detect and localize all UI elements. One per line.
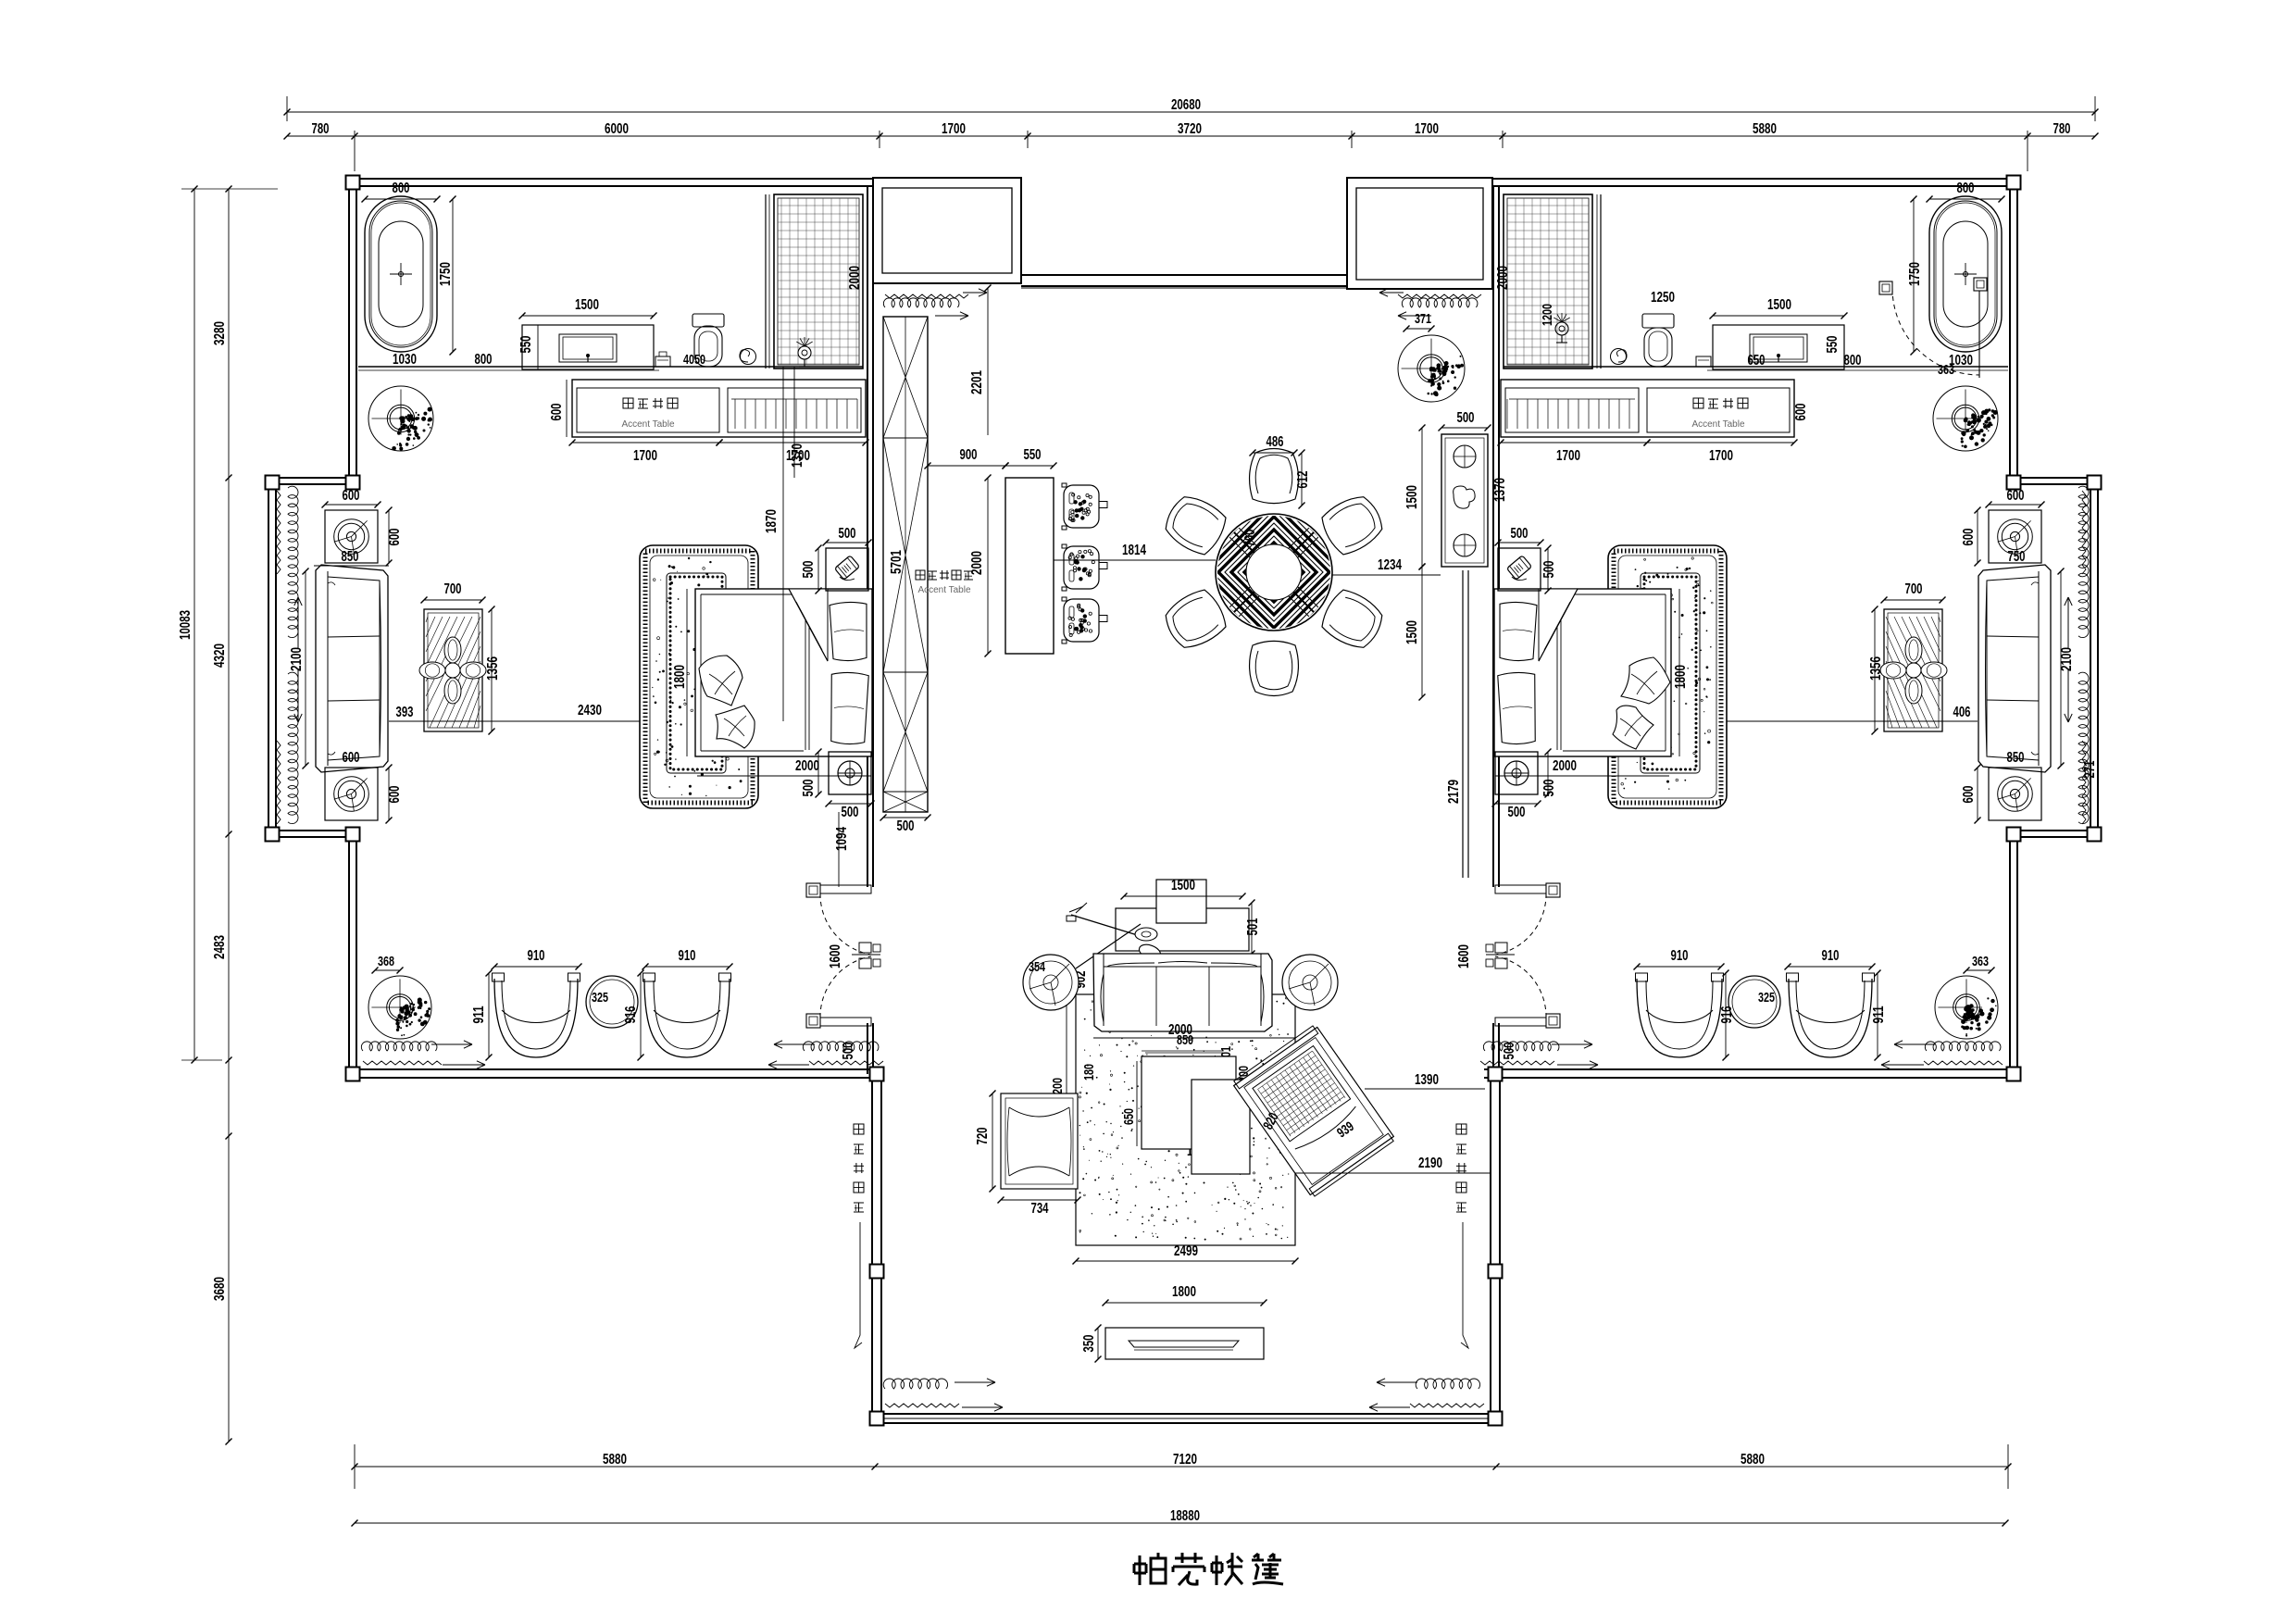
svg-text:911: 911 [1871, 1006, 1887, 1023]
svg-text:2000: 2000 [1553, 758, 1577, 774]
svg-text:734: 734 [1031, 1201, 1049, 1217]
svg-text:600: 600 [2007, 488, 2025, 504]
svg-text:600: 600 [1961, 528, 1977, 545]
svg-text:700: 700 [1242, 529, 1258, 546]
svg-text:850: 850 [1177, 1032, 1193, 1048]
svg-text:612: 612 [1295, 470, 1311, 488]
svg-text:500: 500 [842, 805, 859, 820]
svg-text:1234: 1234 [1378, 557, 1402, 573]
svg-text:2100: 2100 [289, 647, 305, 671]
svg-text:1500: 1500 [1404, 485, 1420, 509]
svg-text:3280: 3280 [212, 321, 228, 345]
svg-text:700: 700 [444, 581, 462, 597]
svg-text:1700: 1700 [1556, 448, 1580, 464]
svg-text:406: 406 [1953, 705, 1971, 720]
svg-text:720: 720 [975, 1127, 991, 1144]
svg-text:500: 500 [1511, 526, 1529, 542]
svg-text:500: 500 [1541, 560, 1557, 578]
svg-text:3720: 3720 [1178, 121, 1202, 137]
svg-text:4320: 4320 [212, 643, 228, 668]
svg-text:371: 371 [1415, 311, 1431, 327]
svg-text:910: 910 [1671, 948, 1689, 964]
svg-text:1700: 1700 [942, 121, 966, 137]
svg-text:850: 850 [2007, 750, 2025, 766]
svg-text:2100: 2100 [2059, 647, 2075, 671]
svg-text:916: 916 [623, 1006, 639, 1023]
svg-text:650: 650 [1121, 1108, 1137, 1125]
svg-text:2483: 2483 [212, 935, 228, 959]
svg-text:1250: 1250 [1651, 290, 1675, 306]
svg-text:2190: 2190 [1418, 1156, 1442, 1171]
svg-text:1094: 1094 [834, 827, 850, 851]
svg-text:Accent Table: Accent Table [621, 419, 675, 430]
svg-text:368: 368 [378, 954, 394, 969]
svg-text:363: 363 [1972, 954, 1989, 969]
svg-text:1814: 1814 [1122, 543, 1146, 558]
svg-text:910: 910 [528, 948, 545, 964]
svg-text:500: 500 [801, 779, 817, 796]
svg-text:2000: 2000 [795, 758, 819, 774]
svg-text:1800: 1800 [672, 665, 688, 689]
svg-text:18880: 18880 [1170, 1508, 1200, 1524]
svg-text:500: 500 [1457, 410, 1475, 426]
svg-text:800: 800 [393, 181, 410, 196]
svg-text:700: 700 [1905, 581, 1923, 597]
svg-text:325: 325 [1758, 990, 1775, 1006]
svg-text:600: 600 [387, 528, 403, 545]
svg-text:20680: 20680 [1171, 97, 1201, 113]
svg-text:900: 900 [960, 447, 978, 463]
svg-text:501: 501 [1245, 918, 1261, 935]
svg-text:500: 500 [897, 818, 915, 834]
svg-text:600: 600 [1793, 403, 1809, 420]
svg-text:800: 800 [475, 352, 493, 368]
svg-text:271: 271 [2082, 760, 2098, 778]
svg-text:500: 500 [839, 526, 856, 542]
svg-text:500: 500 [801, 560, 817, 578]
svg-text:7120: 7120 [1173, 1452, 1197, 1468]
svg-text:3680: 3680 [212, 1277, 228, 1301]
svg-text:780: 780 [312, 121, 330, 137]
svg-text:363: 363 [1938, 362, 1954, 378]
svg-text:1370: 1370 [1492, 478, 1508, 502]
svg-text:1870: 1870 [764, 509, 780, 533]
svg-text:5701: 5701 [889, 550, 905, 574]
svg-text:2000: 2000 [969, 551, 985, 575]
svg-text:911: 911 [471, 1006, 487, 1023]
svg-text:1600: 1600 [1456, 944, 1472, 968]
svg-text:486: 486 [1267, 434, 1284, 450]
svg-text:5880: 5880 [1741, 1452, 1765, 1468]
svg-text:850: 850 [342, 549, 359, 565]
svg-text:10083: 10083 [178, 610, 193, 640]
svg-text:910: 910 [1822, 948, 1840, 964]
svg-text:2201: 2201 [969, 370, 985, 394]
svg-text:1700: 1700 [1709, 448, 1733, 464]
svg-text:916: 916 [1719, 1006, 1735, 1023]
svg-text:1700: 1700 [1415, 121, 1439, 137]
svg-text:1800: 1800 [1673, 665, 1689, 689]
svg-text:550: 550 [1024, 447, 1042, 463]
svg-text:800: 800 [1957, 181, 1975, 196]
svg-text:6000: 6000 [605, 121, 629, 137]
svg-text:1700: 1700 [633, 448, 657, 464]
svg-text:1800: 1800 [1172, 1284, 1196, 1300]
svg-text:600: 600 [387, 785, 403, 803]
svg-text:780: 780 [2053, 121, 2071, 137]
svg-text:600: 600 [343, 750, 360, 766]
svg-text:2430: 2430 [578, 703, 602, 718]
svg-text:325: 325 [592, 990, 608, 1006]
svg-text:500: 500 [1508, 805, 1526, 820]
svg-text:2499: 2499 [1174, 1243, 1198, 1259]
svg-text:1356: 1356 [1868, 656, 1884, 681]
svg-text:1500: 1500 [575, 297, 599, 313]
svg-text:354: 354 [1029, 959, 1045, 975]
svg-text:5880: 5880 [603, 1452, 627, 1468]
svg-text:393: 393 [396, 705, 414, 720]
svg-text:600: 600 [1961, 785, 1977, 803]
svg-text:600: 600 [549, 403, 565, 420]
svg-text:550: 550 [1825, 335, 1841, 353]
svg-text:750: 750 [2008, 549, 2026, 565]
svg-text:5880: 5880 [1753, 121, 1777, 137]
svg-text:1500: 1500 [1171, 878, 1195, 893]
svg-text:Accent Table: Accent Table [1691, 419, 1745, 430]
svg-text:4050: 4050 [683, 352, 705, 368]
svg-text:2179: 2179 [1446, 780, 1462, 804]
svg-text:Accent Table: Accent Table [917, 585, 971, 595]
svg-text:1200: 1200 [1540, 304, 1555, 326]
svg-text:600: 600 [343, 488, 360, 504]
svg-text:1030: 1030 [393, 352, 417, 368]
svg-text:1750: 1750 [1907, 262, 1923, 286]
svg-text:1750: 1750 [438, 262, 454, 286]
svg-text:1370: 1370 [790, 443, 805, 468]
svg-text:180: 180 [1081, 1064, 1097, 1081]
svg-text:1600: 1600 [828, 944, 843, 968]
svg-text:1356: 1356 [485, 656, 501, 681]
svg-text:500: 500 [1541, 779, 1557, 796]
svg-text:1500: 1500 [1404, 620, 1420, 644]
svg-text:350: 350 [1081, 1334, 1097, 1352]
svg-text:550: 550 [518, 335, 534, 353]
svg-text:1390: 1390 [1415, 1072, 1439, 1088]
svg-text:2000: 2000 [847, 266, 863, 290]
svg-text:1500: 1500 [1767, 297, 1791, 313]
svg-text:910: 910 [679, 948, 696, 964]
svg-text:2000: 2000 [1495, 266, 1511, 290]
